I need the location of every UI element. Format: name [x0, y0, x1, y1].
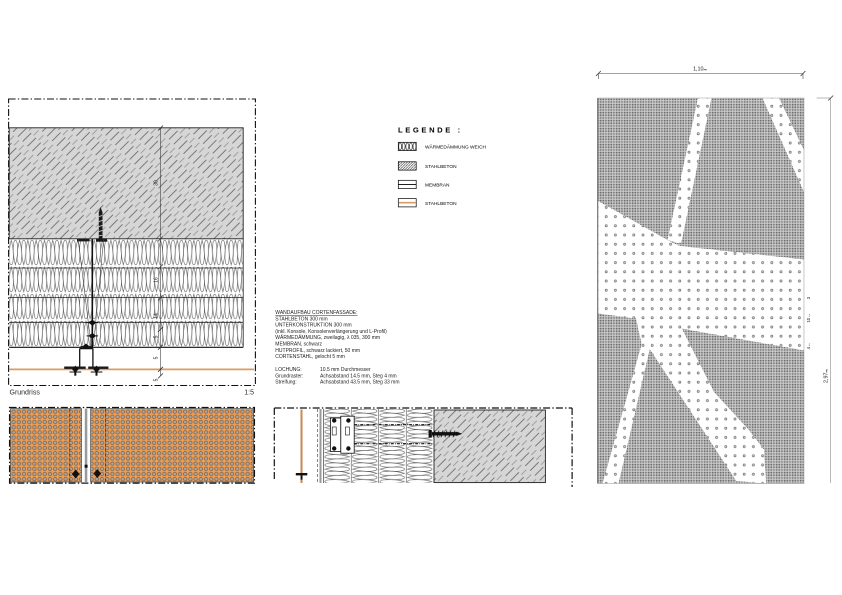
svg-text:WÄRMEDÄMMUNG, zweilagig, λ 035: WÄRMEDÄMMUNG, zweilagig, λ 035, 300 mm [275, 334, 380, 341]
svg-text:Grundraster:: Grundraster: [275, 373, 303, 379]
svg-text:STAHLBETON 300 mm: STAHLBETON 300 mm [275, 316, 327, 322]
svg-text:4↔: 4↔ [806, 343, 811, 350]
svg-text:MEMBRAN: MEMBRAN [425, 183, 450, 189]
svg-text:HUTPROFIL, schwarz lackiert, 5: HUTPROFIL, schwarz lackiert, 50 mm [275, 348, 360, 354]
svg-text:10↔: 10↔ [806, 313, 811, 322]
svg-text:Achsabstand 14.5 mm, Steg 4 mm: Achsabstand 14.5 mm, Steg 4 mm [320, 373, 397, 379]
svg-text:LOCHUNG:: LOCHUNG: [275, 367, 301, 373]
svg-text:30: 30 [154, 180, 160, 186]
svg-text:14: 14 [154, 313, 160, 319]
svg-text:10.5 mm Durchmesser: 10.5 mm Durchmesser [320, 367, 371, 373]
svg-text:STAHLBETON: STAHLBETON [425, 164, 457, 170]
svg-text:UNTERKONSTRUKTION 300 mm: UNTERKONSTRUKTION 300 mm [275, 323, 351, 329]
svg-text:WÄRMEDÄMMUNG WEICH: WÄRMEDÄMMUNG WEICH [425, 144, 487, 151]
svg-text:Grundriss: Grundriss [10, 390, 41, 397]
svg-text:3: 3 [806, 296, 811, 299]
svg-text:5: 5 [154, 378, 160, 381]
svg-text:STAHLBETON: STAHLBETON [425, 201, 457, 207]
svg-text:Achsabstand 43.5 mm, Steg 33 m: Achsabstand 43.5 mm, Steg 33 mm [320, 380, 399, 386]
svg-text:(inkl. Konsole, Konsolenverlän: (inkl. Konsole, Konsolenverlängerung und… [275, 329, 387, 335]
svg-text:2,97ₘ: 2,97ₘ [824, 369, 830, 383]
svg-text:5: 5 [154, 356, 160, 359]
svg-text:CORTENSTAHL, gelocht 5 mm: CORTENSTAHL, gelocht 5 mm [275, 354, 345, 360]
svg-text:16: 16 [154, 277, 160, 283]
svg-text:LEGENDE :: LEGENDE : [398, 126, 463, 135]
svg-text:WANDAUFBAU CORTENFASSADE:: WANDAUFBAU CORTENFASSADE: [275, 310, 357, 316]
svg-text:MEMBRAN, schwarz: MEMBRAN, schwarz [275, 342, 322, 348]
svg-text:Streifung:: Streifung: [275, 380, 296, 386]
svg-text:5: 5 [154, 335, 160, 338]
svg-text:1,10ₘ: 1,10ₘ [693, 67, 707, 73]
svg-text:1:5: 1:5 [244, 390, 254, 397]
